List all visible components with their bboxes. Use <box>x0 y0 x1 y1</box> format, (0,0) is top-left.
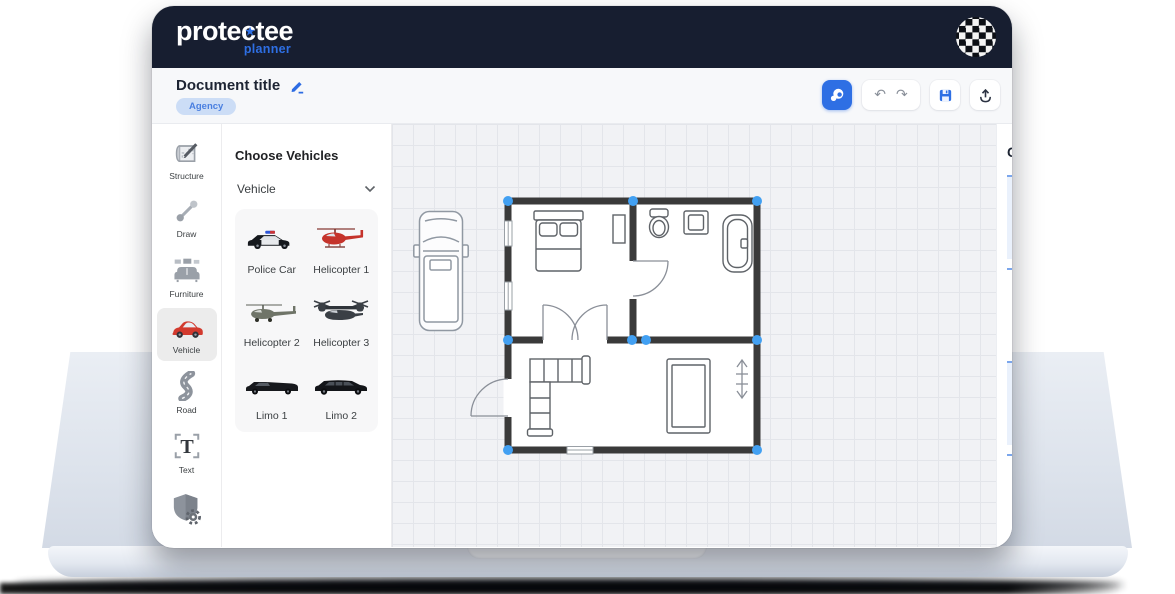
laptop-shadow <box>14 578 1124 592</box>
vehicle-item-helicopter-2[interactable]: Helicopter 2 <box>237 298 307 349</box>
app-window: protec★tee planner Document title Agency <box>152 6 1012 548</box>
checkpoint-card[interactable]: #4 Sc <box>1007 454 1012 538</box>
sidebar-item-structure[interactable]: Structure <box>157 132 217 187</box>
vehicle-item-limo-2[interactable]: Limo 2 <box>307 371 377 422</box>
limo-thumb <box>313 375 369 397</box>
vehicle-item-label: Limo 2 <box>325 410 357 422</box>
redo-icon[interactable]: ↷ <box>896 88 908 102</box>
chevron-down-icon <box>364 185 376 193</box>
blueprint-pencil-icon <box>172 139 202 167</box>
vehicle-item-label: Helicopter 2 <box>244 337 300 349</box>
floor-plan[interactable] <box>465 194 765 464</box>
tool-sidebar: Structure Draw <box>152 124 222 547</box>
sink[interactable] <box>684 211 708 234</box>
winding-road-icon <box>172 371 202 401</box>
vehicle-item-police-car[interactable]: Police Car <box>237 225 307 276</box>
tiltrotor-thumb <box>313 298 369 324</box>
vehicle-grid: Police Car <box>235 209 378 432</box>
sidebar-item-draw[interactable]: Draw <box>157 190 217 245</box>
limo-thumb <box>244 375 300 397</box>
sidebar-item-vehicle[interactable]: Vehicle <box>157 308 217 361</box>
line-endpoints-icon <box>172 197 202 225</box>
rug[interactable] <box>667 359 710 433</box>
sidebar-item-label: Furniture <box>169 289 203 299</box>
van-top-view[interactable] <box>413 209 469 333</box>
checkpoint-card[interactable]: #2 Sc <box>1007 268 1012 352</box>
vehicle-item-helicopter-3[interactable]: Helicopter 3 <box>307 298 377 349</box>
dropdown-value: Vehicle <box>237 182 276 196</box>
sidebar-item-label: Road <box>176 405 196 415</box>
closet[interactable] <box>613 215 625 243</box>
vehicle-item-label: Police Car <box>248 264 296 276</box>
upload-icon <box>977 87 994 104</box>
checkpoint-card[interactable]: #3 Sc <box>1007 361 1012 445</box>
app-header: protec★tee planner <box>152 6 1012 68</box>
red-helicopter-thumb <box>313 225 369 251</box>
vehicle-panel: Choose Vehicles Vehicle <box>222 124 392 547</box>
entrance-door[interactable] <box>471 379 513 417</box>
text-t-icon: T <box>172 431 202 461</box>
vehicle-item-limo-1[interactable]: Limo 1 <box>237 371 307 422</box>
logo-star-icon: ★ <box>245 27 254 38</box>
edit-pencil-icon[interactable] <box>289 78 305 94</box>
bathtub[interactable] <box>723 215 752 272</box>
sofa-icon <box>171 255 203 285</box>
sidebar-item-text[interactable]: T Text <box>157 424 217 481</box>
undo-redo-group: ↶ ↷ <box>862 80 920 110</box>
toilet[interactable] <box>650 209 669 238</box>
save-button[interactable] <box>930 80 960 110</box>
avatar[interactable] <box>956 17 996 57</box>
export-button[interactable] <box>970 80 1000 110</box>
checkpoints-panel: C #1 Sc #2 Sc #3 Sc #4 <box>996 124 1012 547</box>
toolbar: Document title Agency <box>152 68 1012 124</box>
chat-icon <box>828 86 846 104</box>
app-logo: protec★tee planner <box>176 18 293 56</box>
vehicle-item-helicopter-1[interactable]: Helicopter 1 <box>307 225 377 276</box>
sidebar-item-protection[interactable] <box>157 484 217 531</box>
sidebar-item-label: Vehicle <box>173 345 200 355</box>
police-car-thumb <box>245 227 299 251</box>
toolbar-actions: ↶ ↷ <box>822 80 1000 110</box>
shield-gear-icon <box>169 491 205 525</box>
save-icon <box>937 87 954 104</box>
double-bed[interactable] <box>534 211 583 271</box>
agency-badge: Agency <box>176 98 236 115</box>
sidebar-item-label: Draw <box>177 229 197 239</box>
laptop-mockup: protec★tee planner Document title Agency <box>0 0 1175 594</box>
vehicle-item-label: Helicopter 1 <box>313 264 369 276</box>
undo-icon[interactable]: ↶ <box>874 88 886 102</box>
sidebar-item-label: Structure <box>169 171 204 181</box>
main-content: Structure Draw <box>152 124 1012 547</box>
canvas[interactable] <box>392 124 996 547</box>
military-helicopter-thumb <box>244 300 300 324</box>
red-car-icon <box>170 315 204 341</box>
vehicle-item-label: Helicopter 3 <box>313 337 369 349</box>
assistant-button[interactable] <box>822 80 852 110</box>
sidebar-item-label: Text <box>179 465 195 475</box>
checkpoint-card[interactable]: #1 Sc <box>1007 175 1012 259</box>
panel-heading: C <box>1007 144 1012 160</box>
sidebar-item-road[interactable]: Road <box>157 364 217 421</box>
sidebar-item-furniture[interactable]: Furniture <box>157 248 217 305</box>
vehicle-category-dropdown[interactable]: Vehicle <box>235 182 378 196</box>
svg-text:T: T <box>180 436 194 458</box>
panel-title: Choose Vehicles <box>235 148 378 163</box>
page-title: Document title <box>176 77 280 94</box>
logo-wordmark: protec★tee planner <box>176 18 293 56</box>
vehicle-item-label: Limo 1 <box>256 410 288 422</box>
